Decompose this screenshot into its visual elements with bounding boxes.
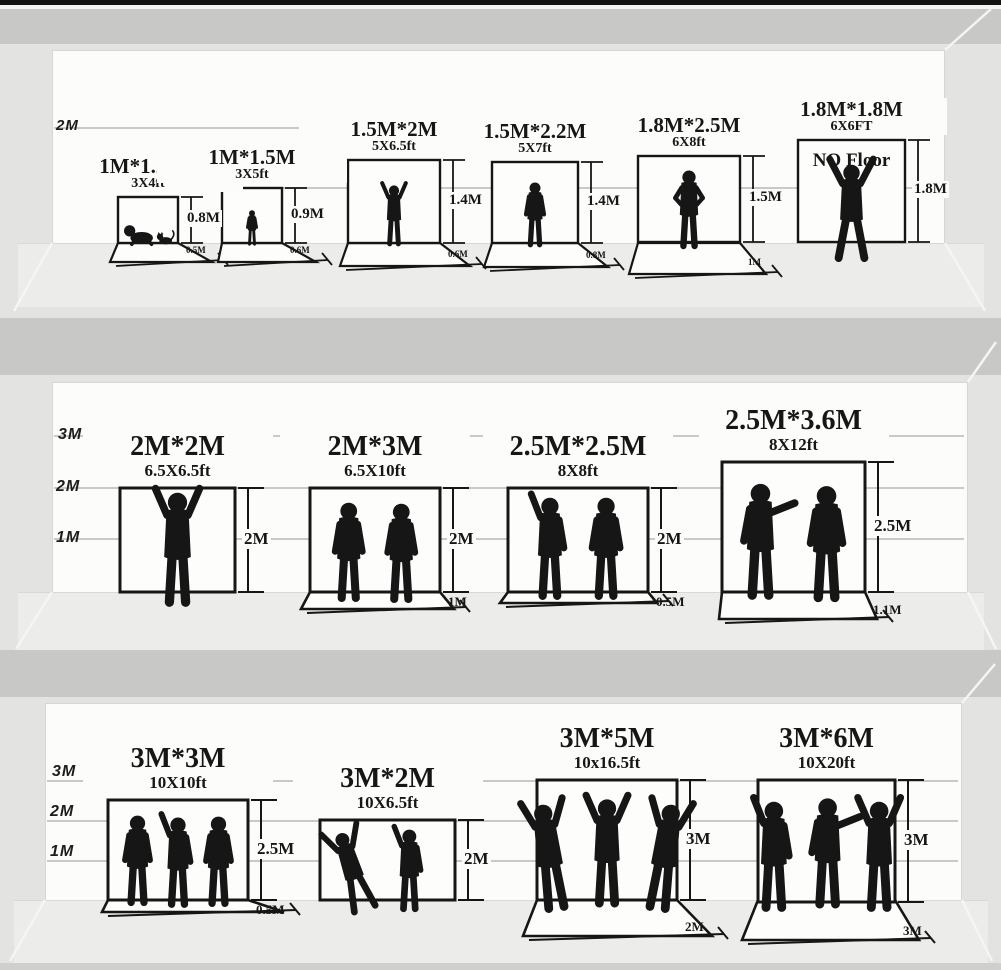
- floor-mat: [218, 243, 316, 262]
- floor-mat: [484, 243, 608, 267]
- height-dimension: [443, 488, 469, 592]
- height-dimension: [581, 162, 603, 243]
- perspective-edge: [968, 342, 996, 382]
- shapes-layer: [0, 0, 1001, 970]
- height-dimension: [285, 188, 307, 243]
- height-dimension: [443, 160, 465, 243]
- height-dimension: [458, 820, 484, 900]
- floor-mat: [110, 243, 212, 262]
- height-dimension: [251, 800, 277, 900]
- backdrop-frame: [508, 488, 648, 592]
- perspective-edge: [962, 664, 995, 703]
- height-dimension: [181, 197, 203, 243]
- perspective-edge: [14, 243, 52, 311]
- floor-mat: [301, 592, 454, 609]
- perspective-edge: [945, 243, 985, 311]
- height-dimension: [868, 462, 894, 592]
- height-dimension: [680, 780, 706, 900]
- floor-mat: [340, 243, 470, 266]
- height-dimension: [238, 488, 264, 592]
- height-dimension: [908, 140, 930, 242]
- backdrop-frame: [310, 488, 440, 592]
- perspective-edge: [962, 900, 992, 961]
- height-dimension: [651, 488, 677, 592]
- perspective-edge: [16, 592, 52, 649]
- backdrop-size-comparison-chart: 2M1M3M2M1M3M2M1M 1M*1.25M3X4ft0.8M0.5M1M…: [0, 0, 1001, 970]
- perspective-edge: [968, 592, 996, 649]
- perspective-edge: [10, 900, 45, 961]
- floor-mat: [719, 592, 877, 619]
- perspective-edge: [945, 9, 991, 50]
- floor-mat: [629, 243, 766, 274]
- height-dimension: [743, 156, 765, 242]
